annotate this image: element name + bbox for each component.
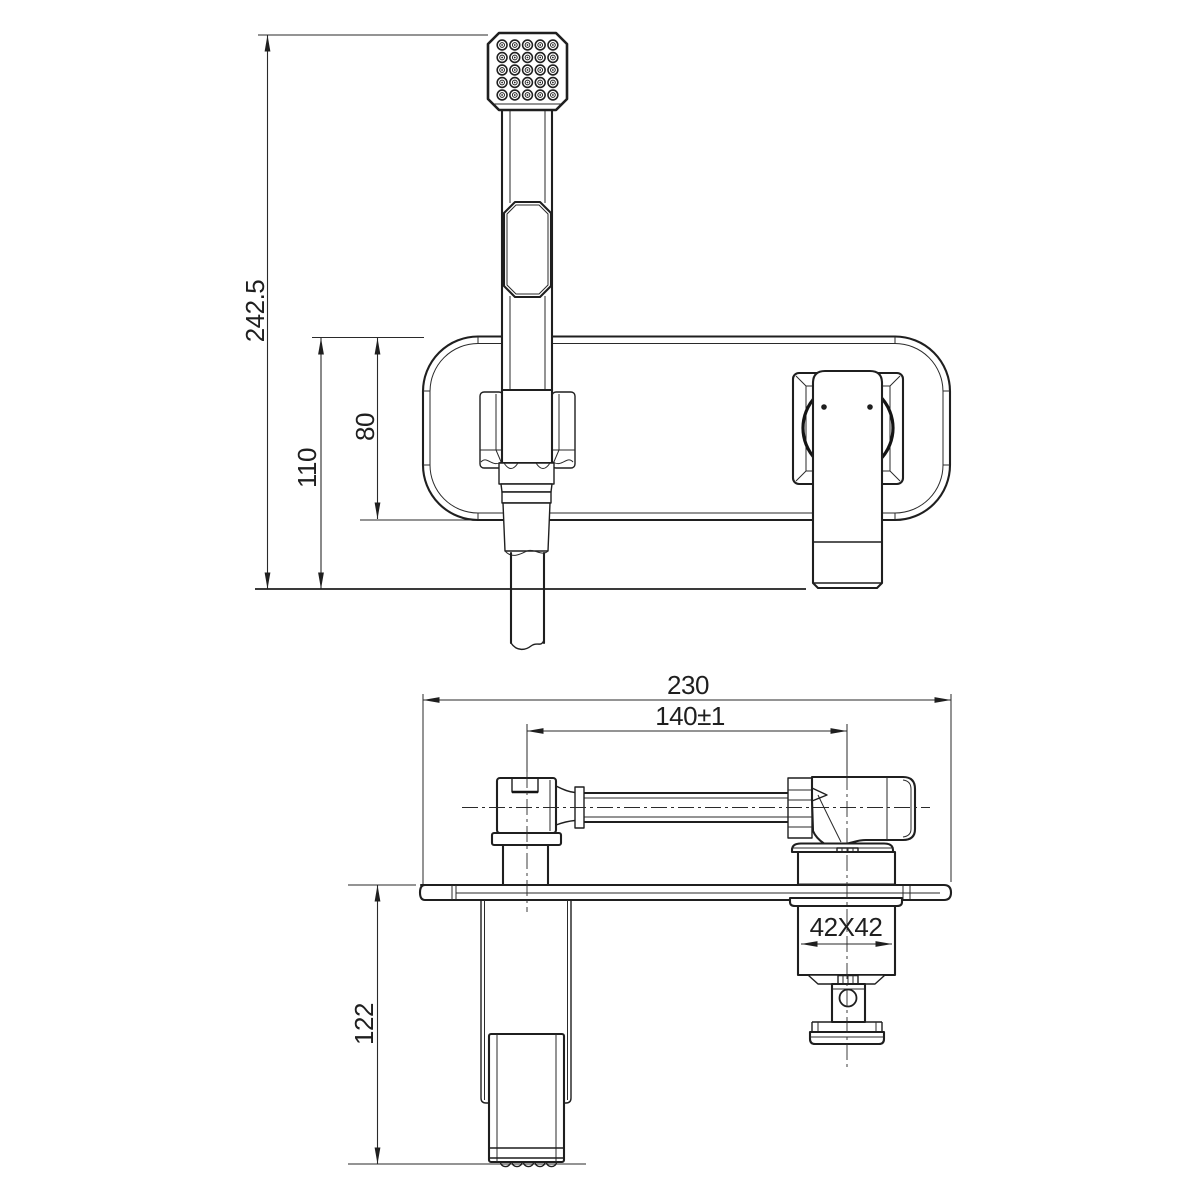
hand-shower-wand [502,108,552,392]
valve-block-upper [798,852,895,885]
holder-slide-block [502,390,552,463]
technical-drawing: 242.5 110 80 [0,0,1200,1200]
hand-shower-head [488,33,567,110]
dimension-overall-height: 242.5 [240,35,270,589]
hose-fitting-collar [501,484,552,492]
dim-label-overall-height: 242.5 [240,280,270,343]
lever-handle [813,371,882,588]
dimension-plate-height: 80 [350,338,380,519]
shower-hose [511,553,544,649]
valve-elbow [812,777,915,844]
pipe-nut [788,778,812,838]
under-plate-flange [790,898,902,906]
hose-break-line [511,640,544,649]
handle-screw-dot [867,404,873,410]
valve-lower-assembly: 42X42 [790,898,902,1044]
holder-left-wing [480,392,503,468]
dimension-body-square: 42X42 [801,912,892,944]
hand-shower-plan [481,900,571,1167]
handle-screw-dot [821,404,827,410]
valve-body-side [788,777,915,885]
dimension-overall-width: 230 [423,670,951,700]
dim-label-center-distance: 140±1 [655,701,725,731]
hose-nut [499,463,554,484]
dim-label-overall-width: 230 [667,670,709,700]
dim-label-plate-offset: 110 [292,448,322,488]
hose-fitting [503,503,550,551]
drawing-sheet: 242.5 110 80 [0,0,1200,1200]
plan-view: 230 140±1 122 [348,670,951,1167]
wand-button-plate [504,202,551,297]
holder-flange [492,833,561,845]
spray-nozzles [496,39,558,100]
dim-label-projection-depth: 122 [349,1003,379,1045]
handle-assembly-front [793,371,903,588]
dimension-center-distance: 140±1 [527,701,847,731]
dim-label-plate-height: 80 [350,413,380,441]
dim-label-body-square: 42X42 [810,912,883,942]
dimension-projection-depth: 122 [349,885,379,1164]
shower-head-profile [489,1034,564,1162]
front-view: 242.5 110 80 [240,33,950,649]
holder-right-wing [552,392,575,468]
dimension-plate-offset: 110 [292,338,322,589]
holder-body-side [492,778,584,885]
shower-holder-bracket [480,390,575,555]
